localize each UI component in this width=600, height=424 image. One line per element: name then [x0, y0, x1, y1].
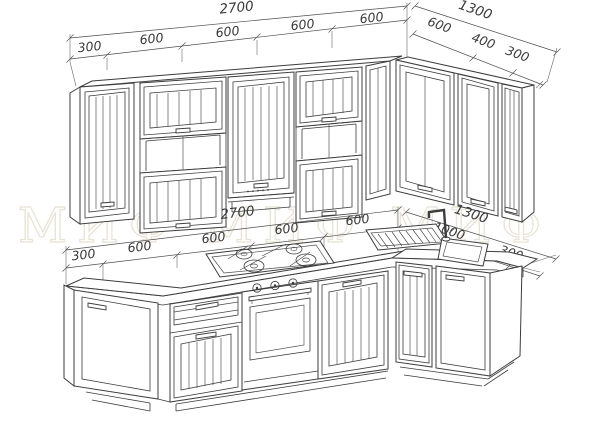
- dim-upper-main-seg-600a: 600: [139, 30, 164, 47]
- base-cabinet-drawer-door: [170, 293, 242, 402]
- drawing-svg: МИФ МИФ МИФ 2700 300 600 600 600 600 130…: [0, 0, 600, 424]
- dim-upper-main-seg-600b: 600: [215, 23, 240, 40]
- dim-upper-return-seg-300: 300: [504, 43, 532, 65]
- upper-corner-strip: [366, 61, 390, 200]
- handle: [176, 223, 190, 228]
- oven: [242, 279, 318, 390]
- handle: [322, 211, 336, 216]
- dim-lower-main-seg-600a: 600: [127, 238, 153, 256]
- open-shelf: [296, 121, 362, 161]
- dim-upper-return-seg-400: 400: [470, 30, 498, 52]
- dim-upper-main-seg-600c: 600: [290, 16, 315, 33]
- side-panel: [490, 266, 522, 376]
- open-shelf: [140, 133, 226, 173]
- upper-cabinet-end-left: [70, 83, 134, 224]
- dim-lower-main-seg-600d: 600: [345, 211, 371, 229]
- corner-stile: [158, 303, 170, 402]
- dim-upper-main-seg-600d: 600: [359, 9, 384, 26]
- dim-lower-main-seg-600b: 600: [201, 229, 227, 247]
- upper-return-door-400: [458, 74, 498, 216]
- dim-lower-main-seg-600c: 600: [274, 220, 300, 238]
- dim-upper-main-total: 2700: [219, 0, 255, 18]
- handle: [101, 202, 114, 207]
- handle: [322, 117, 336, 122]
- base-cabinet-angled-end-left: [64, 285, 158, 411]
- upper-return-door-600: [396, 60, 454, 205]
- base-cabinet-door: [318, 271, 388, 379]
- side-panel: [522, 85, 534, 222]
- kitchen-elevation-drawing: МИФ МИФ МИФ 2700 300 600 600 600 600 130…: [0, 0, 600, 424]
- upper-cabinet-tall-door: [228, 72, 294, 212]
- upper-cabinet-flip-1: [140, 77, 226, 233]
- handle: [176, 128, 190, 133]
- sink-base-cabinet: [396, 262, 432, 367]
- base-cabinets: [64, 249, 537, 411]
- handle: [254, 183, 268, 188]
- upper-cabinet-flip-2: [296, 67, 362, 223]
- upper-return-corner-cabinet: [502, 84, 534, 222]
- dim-upper-main-seg-300: 300: [77, 38, 102, 55]
- dim-lower-main-seg-300: 300: [71, 246, 97, 264]
- dim-upper-return-total: 1300: [456, 0, 494, 23]
